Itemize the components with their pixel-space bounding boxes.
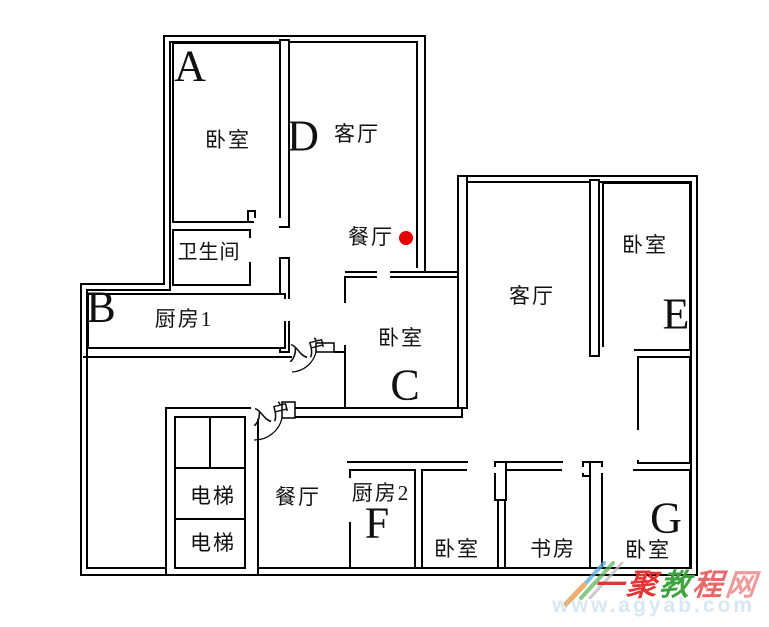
watermark-url: www.agyab.com	[552, 594, 755, 618]
letter-c: C	[390, 360, 419, 411]
letter-a: A	[174, 41, 206, 92]
room-label-elevator-1: 电梯	[190, 480, 236, 510]
letter-d: D	[287, 111, 319, 162]
letter-f: F	[365, 498, 389, 549]
letter-b: B	[86, 282, 115, 333]
letter-g: G	[650, 493, 682, 544]
watermark: 一聚教程网 www.agyab.com	[465, 558, 765, 624]
letter-e: E	[663, 289, 690, 340]
room-label-bedroom-c: 卧室	[378, 322, 424, 352]
room-label-dining-top: 餐厅	[348, 221, 394, 251]
room-label-living-left: 客厅	[334, 118, 380, 148]
room-label-bedroom-a: 卧室	[205, 124, 251, 154]
room-label-kitchen-1: 厨房1	[155, 303, 214, 333]
red-marker-dot	[399, 231, 413, 245]
room-label-dining-bottom: 餐厅	[275, 481, 321, 511]
room-label-living-right: 客厅	[509, 280, 555, 310]
room-label-elevator-2: 电梯	[190, 527, 236, 557]
floor-plan: 卧室 A 客厅 D 餐厅 卫生间 厨房1 B 卧室 C 客厅 卧室 E 电梯 电…	[0, 0, 769, 627]
room-label-bathroom: 卫生间	[178, 236, 241, 265]
room-label-bedroom-e: 卧室	[622, 229, 668, 259]
